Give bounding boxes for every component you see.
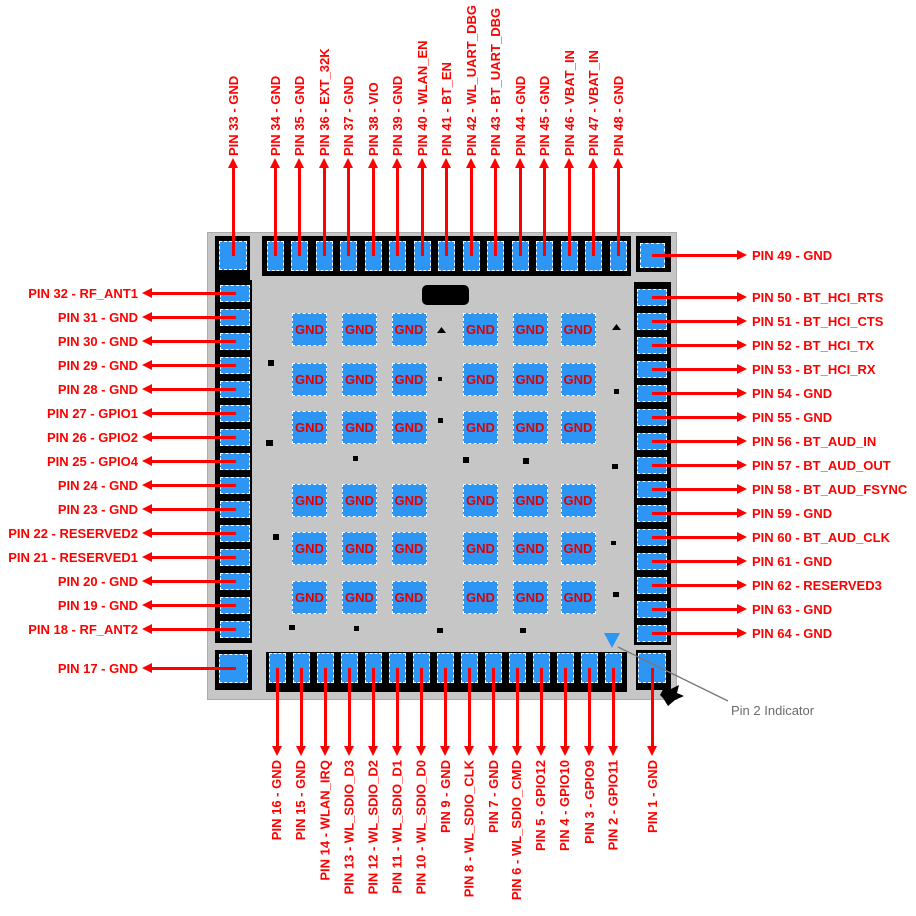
pin-32-label: PIN 32 - RF_ANT1 [28,286,138,301]
pin-2-arrow-line [612,668,615,746]
gnd-pad-r2c2: GND [342,363,377,396]
pin-58-arrow-head-icon [737,484,747,494]
pin2-indicator-label: Pin 2 Indicator [731,703,814,718]
pin-45-arrow-line [543,168,546,256]
gnd-pad-r2c5: GND [513,363,548,396]
pin-28-arrow-head-icon [142,384,152,394]
pin-29-arrow-line [151,364,236,367]
gnd-pad-r5c3: GND [392,532,427,565]
pin-12-arrow-head-icon [368,746,378,756]
gnd-pad-r1c1: GND [292,313,327,346]
pin-60-label: PIN 60 - BT_AUD_CLK [752,530,890,545]
pin-42-label: PIN 42 - WL_UART_DBG [464,5,479,156]
gnd-pad-r4c2: GND [342,484,377,517]
pin-5-label: PIN 5 - GPIO12 [534,760,549,851]
pin-30-arrow-head-icon [142,336,152,346]
pin-14-arrow-line [324,668,327,746]
gnd-pad-r5c4: GND [463,532,498,565]
pin-13-arrow-head-icon [344,746,354,756]
pin-22-arrow-line [151,532,236,535]
pin-12-arrow-line [372,668,375,746]
pin-8-arrow-line [468,668,471,746]
pin-52-arrow-line [652,344,737,347]
pin-52-arrow-head-icon [737,340,747,350]
gnd-pad-r3c6: GND [561,411,596,444]
pin-56-arrow-line [652,440,737,443]
pin-20-label: PIN 20 - GND [58,574,138,589]
pin-7-arrow-head-icon [488,746,498,756]
pin-13-label: PIN 13 - WL_SDIO_D3 [342,760,357,894]
pin-60-arrow-line [652,536,737,539]
pin-52-label: PIN 52 - BT_HCI_TX [752,338,874,353]
pin-11-label: PIN 11 - WL_SDIO_D1 [390,760,405,894]
pin-35-label: PIN 35 - GND [292,76,307,156]
pin-30-label: PIN 30 - GND [58,334,138,349]
gnd-pad-r5c1: GND [292,532,327,565]
pin-43-label: PIN 43 - BT_UART_DBG [488,8,503,156]
pin-44-label: PIN 44 - GND [513,76,528,156]
pin-50-arrow-line [652,296,737,299]
pin-32-arrow-head-icon [142,288,152,298]
pin-6-arrow-line [516,668,519,746]
pin-2-arrow-head-icon [608,746,618,756]
pin-50-label: PIN 50 - BT_HCI_RTS [752,290,883,305]
pin-20-arrow-head-icon [142,576,152,586]
gnd-pad-r4c3: GND [392,484,427,517]
pin-59-label: PIN 59 - GND [752,506,832,521]
pin-4-label: PIN 4 - GPIO10 [558,760,573,851]
pin-24-arrow-line [151,484,236,487]
pin-23-label: PIN 23 - GND [58,502,138,517]
pin-54-arrow-line [652,392,737,395]
pin-61-arrow-line [652,560,737,563]
pin-20-arrow-line [151,580,236,583]
pin-40-arrow-head-icon [417,158,427,168]
pin-33-arrow-line [232,168,235,256]
pin-37-arrow-head-icon [343,158,353,168]
pin-35-arrow-line [298,168,301,256]
pin-5-arrow-head-icon [536,746,546,756]
gnd-pad-r2c1: GND [292,363,327,396]
pin-27-arrow-head-icon [142,408,152,418]
pin-29-arrow-head-icon [142,360,152,370]
pin-31-label: PIN 31 - GND [58,310,138,325]
pin-4-arrow-line [564,668,567,746]
pin-1-arrow-head-icon [647,746,657,756]
gnd-pad-r2c4: GND [463,363,498,396]
pin-48-arrow-line [617,168,620,256]
pin-33-arrow-head-icon [228,158,238,168]
gnd-pad-r4c4: GND [463,484,498,517]
pin-57-arrow-head-icon [737,460,747,470]
chip-pinout-diagram: GNDGNDGNDGNDGNDGNDGNDGNDGNDGNDGNDGNDGNDG… [0,0,916,916]
pin-49-arrow-head-icon [737,250,747,260]
pin-48-label: PIN 48 - GND [611,76,626,156]
pin-62-arrow-head-icon [737,580,747,590]
pin-37-label: PIN 37 - GND [341,76,356,156]
pin-62-arrow-line [652,584,737,587]
pin-51-arrow-head-icon [737,316,747,326]
pin-11-arrow-head-icon [392,746,402,756]
pin-6-label: PIN 6 - WL_SDIO_CMD [510,760,525,900]
gnd-pad-r3c5: GND [513,411,548,444]
pin-25-arrow-head-icon [142,456,152,466]
pin-17-label: PIN 17 - GND [58,661,138,676]
pin-30-arrow-line [151,340,236,343]
pin-14-arrow-head-icon [320,746,330,756]
pin-54-arrow-head-icon [737,388,747,398]
pin-57-label: PIN 57 - BT_AUD_OUT [752,458,891,473]
pin-55-label: PIN 55 - GND [752,410,832,425]
pin-59-arrow-line [652,512,737,515]
pin-23-arrow-head-icon [142,504,152,514]
pin-33-label: PIN 33 - GND [226,76,241,156]
pin-63-arrow-line [652,608,737,611]
pin-12-label: PIN 12 - WL_SDIO_D2 [366,760,381,894]
pin-62-label: PIN 62 - RESERVED3 [752,578,882,593]
pin-34-arrow-head-icon [270,158,280,168]
gnd-pad-r4c6: GND [561,484,596,517]
pin-36-arrow-line [323,168,326,256]
pin-54-label: PIN 54 - GND [752,386,832,401]
pin-45-label: PIN 45 - GND [537,76,552,156]
pin-47-arrow-head-icon [588,158,598,168]
pin-46-arrow-line [568,168,571,256]
pin-56-label: PIN 56 - BT_AUD_IN [752,434,876,449]
gnd-pad-r3c1: GND [292,411,327,444]
pin-49-label: PIN 49 - GND [752,248,832,263]
gnd-pad-r4c5: GND [513,484,548,517]
pin-55-arrow-line [652,416,737,419]
pin-3-label: PIN 3 - GPIO9 [582,760,597,844]
pin-43-arrow-head-icon [490,158,500,168]
pin-3-arrow-line [588,668,591,746]
pin-42-arrow-line [470,168,473,256]
pin-16-arrow-line [276,668,279,746]
gnd-pad-r6c5: GND [513,581,548,614]
pin-27-label: PIN 27 - GPIO1 [47,406,138,421]
orientation-mark [422,285,469,305]
pin-45-arrow-head-icon [539,158,549,168]
pin-5-arrow-line [540,668,543,746]
pin-59-arrow-head-icon [737,508,747,518]
pin-43-arrow-line [494,168,497,256]
pin-32-arrow-line [151,292,236,295]
gnd-pad-r5c2: GND [342,532,377,565]
pin-50-arrow-head-icon [737,292,747,302]
pin-9-arrow-line [444,668,447,746]
pin-19-arrow-head-icon [142,600,152,610]
pin-63-arrow-head-icon [737,604,747,614]
pin-9-arrow-head-icon [440,746,450,756]
pin-41-arrow-head-icon [441,158,451,168]
pin-29-label: PIN 29 - GND [58,358,138,373]
pin-1-arrow-line [651,668,654,746]
pin-46-arrow-head-icon [564,158,574,168]
pin-53-label: PIN 53 - BT_HCI_RX [752,362,876,377]
pin-31-arrow-line [151,316,236,319]
gnd-pad-r6c3: GND [392,581,427,614]
pin-37-arrow-line [347,168,350,256]
pin-11-arrow-line [396,668,399,746]
pin-18-label: PIN 18 - RF_ANT2 [28,622,138,637]
pin-58-arrow-line [652,488,737,491]
pin-31-arrow-head-icon [142,312,152,322]
pin-16-label: PIN 16 - GND [270,760,285,840]
pin-42-arrow-head-icon [466,158,476,168]
pin-53-arrow-line [652,368,737,371]
gnd-pad-r4c1: GND [292,484,327,517]
gnd-pad-r6c1: GND [292,581,327,614]
pin-40-label: PIN 40 - WLAN_EN [415,40,430,156]
gnd-pad-r2c3: GND [392,363,427,396]
pin-27-arrow-line [151,412,236,415]
pin-34-arrow-line [274,168,277,256]
pin-4-arrow-head-icon [560,746,570,756]
pin-7-arrow-line [492,668,495,746]
pin-53-arrow-head-icon [737,364,747,374]
pin-10-label: PIN 10 - WL_SDIO_D0 [414,760,429,894]
pin-55-arrow-head-icon [737,412,747,422]
pin-3-arrow-head-icon [584,746,594,756]
pin-56-arrow-head-icon [737,436,747,446]
gnd-pad-r3c2: GND [342,411,377,444]
pin-19-arrow-line [151,604,236,607]
gnd-pad-r2c6: GND [561,363,596,396]
pin-14-label: PIN 14 - WLAN_IRQ [318,760,333,881]
pin-8-arrow-head-icon [464,746,474,756]
pin-47-arrow-line [592,168,595,256]
pin-38-label: PIN 38 - VIO [366,82,381,156]
gnd-pad-r3c3: GND [392,411,427,444]
pin-7-label: PIN 7 - GND [486,760,501,833]
pin-18-arrow-line [151,628,236,631]
gnd-pad-r6c6: GND [561,581,596,614]
pin-10-arrow-head-icon [416,746,426,756]
pin-28-arrow-line [151,388,236,391]
pin-16-arrow-head-icon [272,746,282,756]
pin-34-label: PIN 34 - GND [268,76,283,156]
pin-61-label: PIN 61 - GND [752,554,832,569]
pin-39-label: PIN 39 - GND [390,76,405,156]
pin-24-arrow-head-icon [142,480,152,490]
pin-13-arrow-line [348,668,351,746]
pin-17-arrow-head-icon [142,663,152,673]
pin-8-label: PIN 8 - WL_SDIO_CLK [462,760,477,897]
pin-60-arrow-head-icon [737,532,747,542]
pin-51-label: PIN 51 - BT_HCI_CTS [752,314,883,329]
pin-39-arrow-line [396,168,399,256]
pin-35-arrow-head-icon [294,158,304,168]
pin-26-arrow-line [151,436,236,439]
pin-22-arrow-head-icon [142,528,152,538]
gnd-pad-r1c4: GND [463,313,498,346]
gnd-pad-r5c5: GND [513,532,548,565]
pin-21-label: PIN 21 - RESERVED1 [8,550,138,565]
pin-26-label: PIN 26 - GPIO2 [47,430,138,445]
gnd-pad-r1c3: GND [392,313,427,346]
pin-18-arrow-head-icon [142,624,152,634]
pin-28-label: PIN 28 - GND [58,382,138,397]
pin-58-label: PIN 58 - BT_AUD_FSYNC [752,482,907,497]
gnd-pad-r6c4: GND [463,581,498,614]
pin2-indicator-triangle [604,633,620,648]
pin-38-arrow-head-icon [368,158,378,168]
pin-6-arrow-head-icon [512,746,522,756]
gnd-pad-r5c6: GND [561,532,596,565]
pin-25-arrow-line [151,460,236,463]
pin-41-label: PIN 41 - BT_EN [439,62,454,156]
gnd-pad-r3c4: GND [463,411,498,444]
pin-19-label: PIN 19 - GND [58,598,138,613]
pin-48-arrow-head-icon [613,158,623,168]
pin-63-label: PIN 63 - GND [752,602,832,617]
pin-46-label: PIN 46 - VBAT_IN [562,50,577,156]
gnd-pad-r1c5: GND [513,313,548,346]
pin-39-arrow-head-icon [392,158,402,168]
pin-47-label: PIN 47 - VBAT_IN [586,50,601,156]
pin-64-arrow-line [652,632,737,635]
pin-36-arrow-head-icon [319,158,329,168]
pin-9-label: PIN 9 - GND [438,760,453,833]
gnd-pad-r1c2: GND [342,313,377,346]
pin-38-arrow-line [372,168,375,256]
pin-40-arrow-line [421,168,424,256]
pin-36-label: PIN 36 - EXT_32K [317,48,332,156]
pin-61-arrow-head-icon [737,556,747,566]
gnd-pad-r6c2: GND [342,581,377,614]
pin-25-label: PIN 25 - GPIO4 [47,454,138,469]
pin-23-arrow-line [151,508,236,511]
pin-64-arrow-head-icon [737,628,747,638]
pin-1-label: PIN 1 - GND [645,760,660,833]
pin-15-arrow-line [300,668,303,746]
pin-10-arrow-line [420,668,423,746]
pin-64-label: PIN 64 - GND [752,626,832,641]
pin-17-arrow-line [151,667,236,670]
pin-22-label: PIN 22 - RESERVED2 [8,526,138,541]
pin-49-arrow-line [652,254,737,257]
pin-41-arrow-line [445,168,448,256]
pin-51-arrow-line [652,320,737,323]
pin-44-arrow-line [519,168,522,256]
pin-15-arrow-head-icon [296,746,306,756]
pin-57-arrow-line [652,464,737,467]
pin-21-arrow-head-icon [142,552,152,562]
pin-15-label: PIN 15 - GND [294,760,309,840]
pin-26-arrow-head-icon [142,432,152,442]
pin-21-arrow-line [151,556,236,559]
pin-2-label: PIN 2 - GPIO11 [606,760,621,850]
pin-44-arrow-head-icon [515,158,525,168]
pin-24-label: PIN 24 - GND [58,478,138,493]
gnd-pad-r1c6: GND [561,313,596,346]
